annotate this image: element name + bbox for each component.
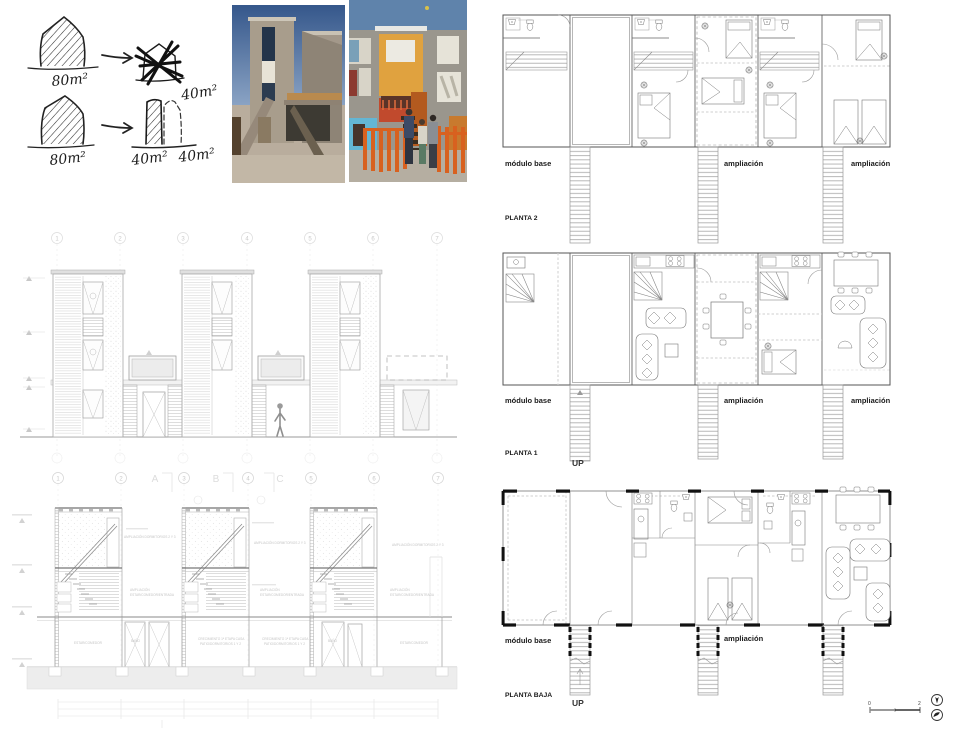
- left-structure: [232, 117, 241, 161]
- planta2-amp2-label: ampliación: [851, 159, 891, 168]
- section-grid-1: 1: [56, 477, 60, 483]
- svg-text:ESTAR/COMEDOR: ESTAR/COMEDOR: [400, 641, 429, 645]
- level-markers: [23, 276, 45, 432]
- planta2-ampliacion-1: [697, 17, 756, 145]
- scale-bar-group: 0 2: [862, 688, 954, 728]
- sketch-label-80-top: 80m²: [51, 71, 89, 90]
- svg-text:AMPLIACIÓN: AMPLIACIÓN: [260, 587, 280, 592]
- grid-bubble-6: 6: [371, 237, 375, 243]
- upper-window: [386, 40, 415, 62]
- grid-bubble-1: 1: [55, 237, 59, 243]
- section-grid-3: 3: [182, 477, 186, 483]
- planta1-exterior-stairs: [570, 385, 843, 461]
- svg-text:BAÑO: BAÑO: [328, 638, 338, 643]
- svg-text:CRECIMIENTO 1ª ETAPA CASA: CRECIMIENTO 1ª ETAPA CASA: [262, 637, 309, 641]
- planta2-amp1-label: ampliación: [724, 159, 764, 168]
- svg-text:AMPLIACIÓN DORMITORIOS 2 Y 3: AMPLIACIÓN DORMITORIOS 2 Y 3: [124, 534, 176, 539]
- svg-text:CRECIMIENTO 1ª ETAPA CASA: CRECIMIENTO 1ª ETAPA CASA: [198, 637, 245, 641]
- grid-bubble-4: 4: [245, 237, 249, 243]
- plantabaja-title: PLANTA BAJA: [505, 692, 552, 699]
- sketch-house-80-bottom: [28, 96, 94, 148]
- section-grid-6: 6: [372, 477, 376, 483]
- sketch-label-40-b: 40m²: [177, 146, 217, 167]
- planta2-stair-runs: [506, 52, 819, 70]
- section-letter-c: C: [276, 474, 283, 485]
- plantabaja-amp1-label: ampliación: [724, 634, 764, 643]
- svg-text:AMPLIACIÓN: AMPLIACIÓN: [130, 587, 150, 592]
- planta1-amp2-label: ampliación: [851, 396, 891, 405]
- elevation-wing-2: [252, 350, 304, 437]
- planta2-title: PLANTA 2: [505, 215, 538, 222]
- door: [258, 117, 271, 143]
- plan-planta1: módulo base ampliación ampliación PLANTA…: [498, 250, 913, 478]
- scale-bar: 0 2: [868, 701, 921, 713]
- scale-zero: 0: [868, 701, 871, 707]
- section-grid-4: 4: [246, 477, 250, 483]
- svg-text:ESTAR/COMEDOR: ESTAR/COMEDOR: [74, 641, 103, 645]
- planta2-exterior-stairs: [570, 147, 843, 243]
- planta1-up-label: UP: [572, 458, 584, 468]
- plan-plantabaja: módulo base ampliación PLANTA BAJA UP: [498, 483, 913, 732]
- elevation-tower-3: [308, 270, 382, 437]
- svg-text:ESTAR/COMEDOR/ENTRADA: ESTAR/COMEDOR/ENTRADA: [130, 593, 175, 597]
- photo-exterior-concrete: [232, 5, 345, 183]
- sketch-label-80-bottom: 80m²: [49, 149, 88, 169]
- section-grid-7: 7: [436, 477, 440, 483]
- grid-bubble-7: 7: [435, 237, 439, 243]
- planta1-walls: [503, 253, 890, 385]
- svg-text:PATIO/DORMITORIOS 1 Y 2: PATIO/DORMITORIOS 1 Y 2: [264, 642, 305, 646]
- section-letter-a: A: [152, 474, 159, 485]
- grid-bubble-2: 2: [118, 237, 122, 243]
- plantabaja-up-label: UP: [572, 698, 584, 708]
- section-foundation: [27, 667, 457, 689]
- planta2-module-label: módulo base: [505, 159, 551, 168]
- photo-exterior-color: [349, 0, 467, 182]
- balloon: [425, 6, 429, 10]
- planta2-walls: [503, 15, 890, 147]
- person-figure: [275, 403, 285, 436]
- sketch-arrow-2: [102, 123, 132, 133]
- north-arrow-icon: [932, 695, 943, 706]
- sketch-house-80-top: [28, 17, 98, 69]
- planta1-module-label: módulo base: [505, 396, 551, 405]
- svg-text:ESTAR/COMEDOR/ENTRADA: ESTAR/COMEDOR/ENTRADA: [390, 593, 435, 597]
- svg-text:AMPLIACIÓN: AMPLIACIÓN: [390, 587, 410, 592]
- grid-bubble-3: 3: [181, 237, 185, 243]
- patio-void: [573, 256, 630, 383]
- planta2-ampliacion-2: [824, 20, 890, 144]
- sketch-label-40-crossed: 40m²: [179, 82, 219, 104]
- presentation-sheet: 80m² 40m² 80m² 40m² 40m²: [0, 0, 958, 732]
- planta1-title: PLANTA 1: [505, 450, 538, 457]
- grid-bubble-5: 5: [308, 237, 312, 243]
- concept-sketch: 80m² 40m² 80m² 40m² 40m²: [12, 6, 227, 186]
- wood-balcony-rail: [287, 93, 342, 100]
- svg-text:BAÑO: BAÑO: [131, 638, 141, 643]
- section-grid-2: 2: [119, 477, 123, 483]
- section-drawing: 1 2 3 4 5 6 7 A B C: [12, 462, 464, 730]
- orientation-icon: [932, 710, 943, 721]
- sketch-house-crossed: [136, 42, 184, 84]
- elevation-tower-2: [180, 270, 254, 437]
- scale-two: 2: [918, 701, 921, 707]
- planta1-amp1-label: ampliación: [724, 396, 764, 405]
- tower-window-top: [262, 27, 275, 61]
- section-letter-b: B: [213, 474, 220, 485]
- plantabaja-module-label: módulo base: [505, 636, 551, 645]
- patio-void: [573, 18, 630, 145]
- section-grid-5: 5: [309, 477, 313, 483]
- sketch-tower-40: [132, 100, 196, 148]
- svg-text:AMPLIACIÓN DORMITORIOS 2 Y 3: AMPLIACIÓN DORMITORIOS 2 Y 3: [392, 542, 444, 547]
- elevation-wing-1: [123, 350, 182, 437]
- sketch-label-40-a: 40m²: [130, 149, 170, 170]
- svg-text:AMPLIACIÓN DORMITORIOS 2 Y 3: AMPLIACIÓN DORMITORIOS 2 Y 3: [254, 540, 306, 545]
- plantabaja-exterior-stairs: [569, 625, 845, 695]
- right-window-1: [437, 36, 459, 64]
- svg-text:PATIO/DORMITORIOS 1 Y 2: PATIO/DORMITORIOS 1 Y 2: [200, 642, 241, 646]
- plan-planta2: módulo base ampliación ampliación PLANTA…: [498, 8, 913, 248]
- elevation-drawing: 1 2 3 4 5 6 7: [15, 230, 460, 465]
- elevation-tower-1: [51, 270, 125, 437]
- svg-text:ESTAR/COMEDOR/ENTRADA: ESTAR/COMEDOR/ENTRADA: [260, 593, 305, 597]
- dimension-lines: [58, 699, 438, 728]
- sketch-arrow-1: [102, 53, 132, 63]
